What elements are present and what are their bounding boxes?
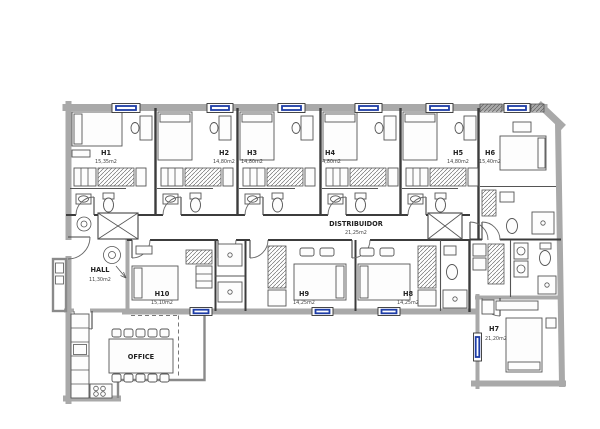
- room-h9-label: H9: [299, 290, 310, 298]
- room-h3-area: 14,80m2: [241, 159, 263, 165]
- room-h8-label: H8: [403, 290, 414, 298]
- toilet-icon: [104, 198, 114, 212]
- room-h7-area: 21,20m2: [485, 336, 507, 342]
- washer-icon: [514, 243, 528, 259]
- room-h8: [358, 246, 467, 308]
- room-h8-area: 14,25m2: [397, 300, 419, 306]
- stove-icon: [90, 384, 112, 398]
- room-h2-area: 14,80m2: [213, 159, 235, 165]
- window: [112, 104, 140, 113]
- window: [312, 308, 333, 316]
- room-h10-label: H10: [155, 290, 170, 298]
- room-h1-label: H1: [101, 149, 112, 157]
- room-h5-area: 14,80m2: [447, 159, 469, 165]
- room-h4-area: 14,80m2: [319, 159, 341, 165]
- room-h9-area: 14,25m2: [293, 300, 315, 306]
- hall-label: HALL: [90, 266, 110, 274]
- room-h6: [482, 122, 554, 234]
- toilet-icon: [447, 265, 458, 280]
- office-label: OFFICE: [128, 353, 155, 361]
- fan-symbol-icon: [104, 247, 121, 264]
- wardrobe-icon: [98, 168, 134, 186]
- room-h3-label: H3: [247, 149, 258, 157]
- room-h10: [132, 246, 212, 300]
- toilet-icon: [507, 219, 518, 234]
- wing-utility-rooms: [473, 243, 556, 294]
- chair-icon: [112, 329, 121, 337]
- window: [378, 308, 400, 316]
- window: [278, 104, 305, 113]
- room-h5-label: H5: [453, 149, 464, 157]
- room-h1-area: 15,35m2: [95, 159, 117, 165]
- dryer-icon: [514, 261, 528, 277]
- floor-plan-drawing: H1 15,35m2 H2 14,80m2 H3 14,80m2 H4 14,8…: [0, 0, 600, 429]
- room-h7-label: H7: [489, 325, 500, 333]
- room-h2-label: H2: [219, 149, 230, 157]
- window: [190, 308, 212, 316]
- room-h4-label: H4: [325, 149, 336, 157]
- distribuidor-label: DISTRIBUIDOR: [329, 220, 383, 228]
- floor-plan-canvas: H1 15,35m2 H2 14,80m2 H3 14,80m2 H4 14,8…: [0, 0, 600, 429]
- spiral-symbol-icon: [77, 217, 91, 231]
- bathroom-middle: [218, 244, 242, 302]
- room-h10-area: 15,10m2: [151, 300, 173, 306]
- distribuidor-area: 21,25m2: [345, 230, 367, 236]
- window: [355, 104, 382, 113]
- window: [474, 333, 482, 361]
- corridor: [98, 213, 462, 239]
- window: [207, 104, 233, 113]
- window: [504, 104, 530, 113]
- room-h6-label: H6: [485, 149, 496, 157]
- room-h6-area: 15,40m2: [479, 159, 501, 165]
- entrance-door-arc: [68, 237, 90, 259]
- hall-area: 11,30m2: [89, 277, 111, 283]
- entry-porch: [53, 259, 66, 311]
- window: [426, 104, 453, 113]
